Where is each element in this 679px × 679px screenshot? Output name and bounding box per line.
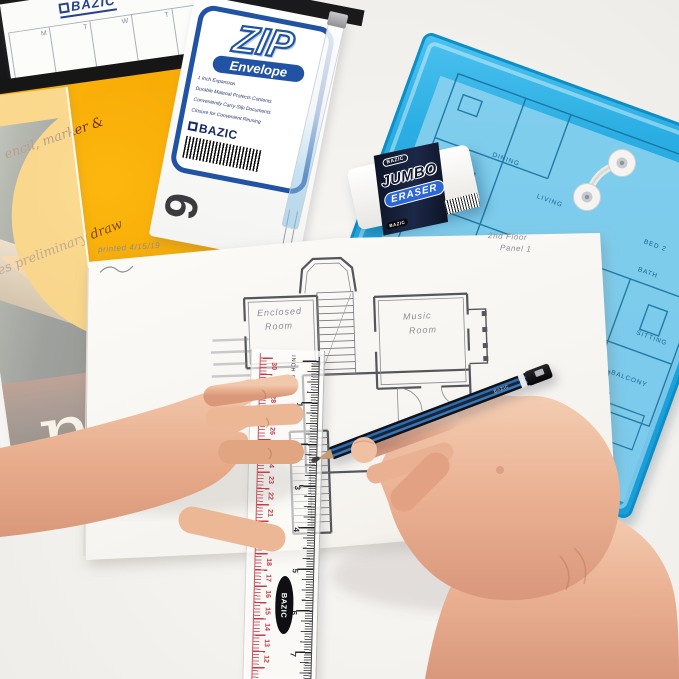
ruler-cm-number: 23 [267,473,274,487]
ruler-cm-number: 26 [268,424,275,438]
blueprint-room-label: LIVING [536,193,564,209]
ruler-cm-number: 17 [264,571,271,585]
ruler-inch-number: 3 [293,481,302,495]
blueprint-room-label: BED 2 [643,239,668,254]
ruler-cm-number: 30 [270,359,277,373]
calendar-day-letter: W [121,18,129,26]
ruler-brand: BAZIC [280,592,290,618]
ruler-inch-number: 5 [291,564,300,578]
plan-bath-fixtures [407,434,458,464]
ruler-cm-number: 27 [269,408,276,422]
paper-stack-edge [84,268,88,556]
calendar-day-letter: T [164,12,169,20]
ruler-inch-number: 7 [288,647,297,661]
brand-box-icon [188,121,199,132]
ruler-cm-number: 22 [266,489,273,503]
ruler-cm-number: 15 [263,603,270,617]
eraser-sleeve: BAZIC JUMBO ERASER BAZIC [374,142,448,235]
brand-box-icon [58,2,69,13]
blueprint-room-label: DINING [491,152,520,168]
zip-size-digit: 6 [153,188,211,223]
ruler-inch-number: 4 [292,522,301,536]
room-label-right-1: Music [403,310,432,321]
eraser-brand-top: BAZIC [382,153,408,167]
ruler-cm-number: 12 [262,652,269,666]
calendar-day-letter: T [83,24,88,32]
room-label-left-2: Room [265,320,294,331]
floor-plan-drawing [75,225,620,560]
ruler-cm-number: 14 [263,620,270,634]
ruler-inch-number: 2 [294,439,303,453]
note-panel: Panel 1 [500,243,532,254]
clear-ruler: 12131415161718192021222324252627282930 1… [242,349,325,679]
ruler-cm-number: 25 [268,441,275,455]
blueprint-room-label: SITTING [635,329,668,347]
zipper-slider [327,11,349,29]
ruler-cm-number: 16 [264,587,271,601]
ruler-scale-label: INCH 0 [289,355,296,379]
signature-scribble [100,266,133,273]
calendar-day-letter: M [41,30,48,38]
floor-plan-paper: printed 4/15/19 2nd Floor Panel 1 Enclos… [75,225,620,560]
ruler-cm-number: 21 [266,506,273,520]
room-label-right-2: Room [409,324,438,335]
ruler-inch-number: 1 [295,398,304,412]
ruler-cm-number: 29 [269,375,276,389]
pencil-brand: BAZIC [493,383,510,393]
ruler-cm-number: 24 [267,457,274,471]
plan-porch [468,309,489,364]
blueprint-room-label: BATH [637,266,659,280]
ruler-cm-number: 19 [265,538,272,552]
ruler-cm-number: 13 [263,636,270,650]
stationery-flatlay-photo: BAZIC M T W T F encil, marker & hes prel… [0,0,679,679]
ruler-cm-number: 20 [266,522,273,536]
calendar-brand-logo: BAZIC [58,0,117,19]
plan-pencil-notes [211,339,255,388]
ruler-cm-number: 18 [265,555,272,569]
envelope-string-closure [568,142,656,230]
ruler-cm-number: 28 [269,392,276,406]
